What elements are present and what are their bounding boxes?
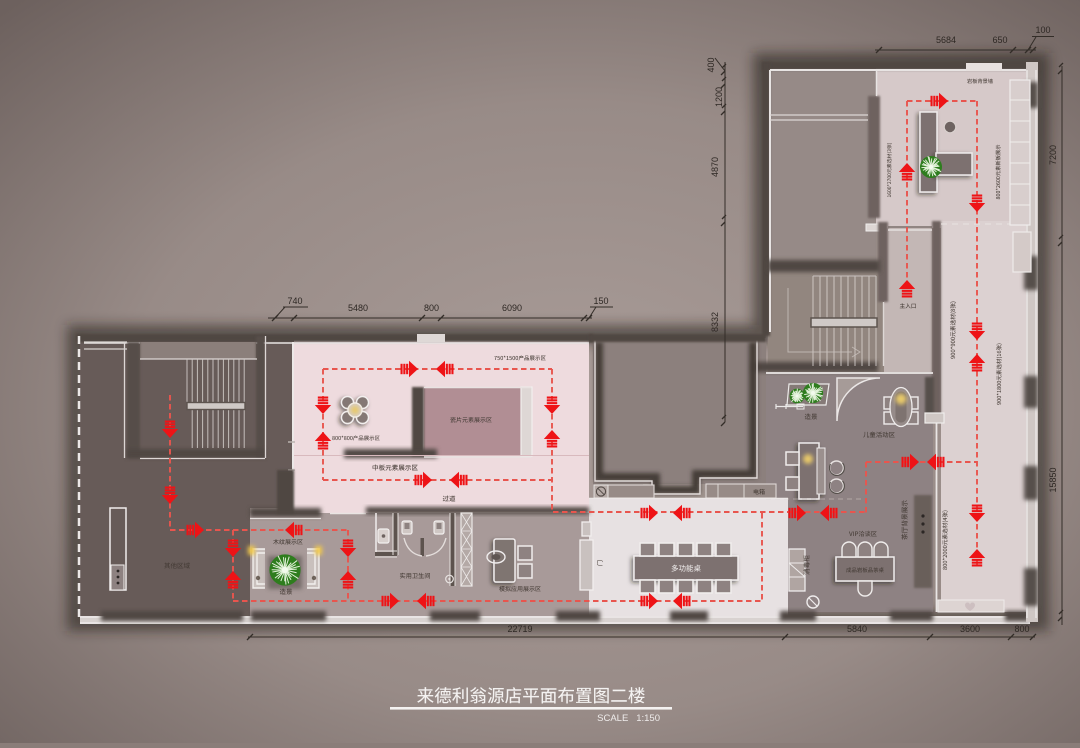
svg-text:5840: 5840 [847, 624, 867, 634]
svg-text:150: 150 [593, 296, 608, 306]
svg-text:1200: 1200 [714, 87, 724, 107]
svg-text:15850: 15850 [1048, 467, 1058, 492]
svg-text:800: 800 [1014, 624, 1029, 634]
svg-text:3600: 3600 [960, 624, 980, 634]
svg-text:7200: 7200 [1048, 145, 1058, 165]
svg-text:5684: 5684 [936, 35, 956, 45]
svg-text:5480: 5480 [348, 303, 368, 313]
svg-text:800: 800 [424, 303, 439, 313]
svg-text:100: 100 [1035, 25, 1050, 35]
svg-text:740: 740 [287, 296, 302, 306]
svg-text:6090: 6090 [502, 303, 522, 313]
svg-text:8332: 8332 [710, 312, 720, 332]
svg-text:4870: 4870 [710, 157, 720, 177]
svg-text:650: 650 [992, 35, 1007, 45]
svg-text:22719: 22719 [507, 624, 532, 634]
svg-text:SCALE 1:150: SCALE 1:150 [597, 713, 660, 724]
svg-text:400: 400 [706, 57, 716, 72]
